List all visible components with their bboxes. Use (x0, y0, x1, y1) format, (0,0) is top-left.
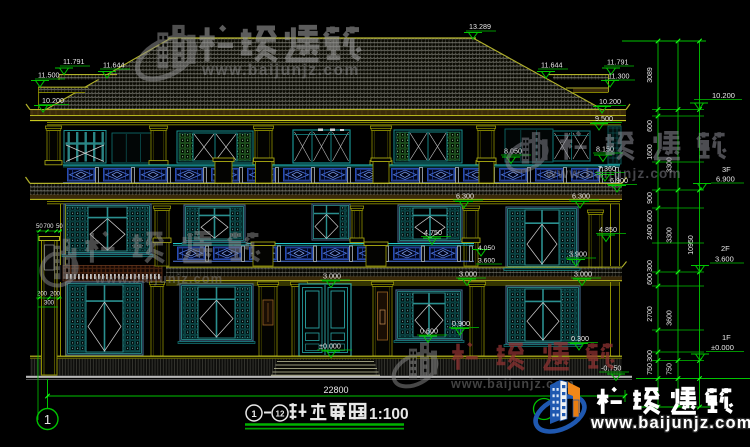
svg-text:10950: 10950 (688, 235, 695, 255)
svg-text:3.600: 3.600 (715, 255, 734, 264)
svg-text:6.300: 6.300 (572, 192, 590, 201)
svg-text:600: 600 (647, 210, 654, 222)
svg-text:700: 700 (44, 224, 55, 230)
svg-text:11.791: 11.791 (607, 58, 628, 67)
svg-text:0.600: 0.600 (420, 327, 438, 336)
svg-text:6.300: 6.300 (456, 192, 474, 201)
svg-text:www.baijunjz.com: www.baijunjz.com (590, 414, 750, 432)
svg-text:3.000: 3.000 (323, 272, 341, 281)
svg-text:600: 600 (647, 273, 654, 285)
svg-text:10.200: 10.200 (712, 91, 735, 100)
svg-text:11.791: 11.791 (63, 57, 84, 66)
svg-text:1: 1 (44, 412, 51, 427)
svg-text:1:100: 1:100 (369, 406, 409, 423)
svg-text:10.200: 10.200 (42, 96, 64, 105)
svg-text:9.500: 9.500 (595, 114, 613, 123)
svg-text:750: 750 (667, 363, 674, 375)
svg-text:50: 50 (56, 224, 63, 230)
svg-text:200: 200 (37, 292, 48, 298)
svg-text:10.200: 10.200 (599, 97, 621, 106)
svg-text:3600: 3600 (667, 310, 674, 326)
svg-text:22800: 22800 (323, 385, 348, 395)
svg-text:11.644: 11.644 (103, 61, 124, 70)
svg-text:200: 200 (50, 292, 61, 298)
svg-text:2400: 2400 (647, 224, 654, 240)
svg-text:11.500: 11.500 (38, 71, 59, 80)
svg-text:1F: 1F (722, 333, 731, 342)
svg-text:0.900: 0.900 (452, 319, 470, 328)
svg-text:3F: 3F (722, 165, 731, 174)
svg-text:600: 600 (647, 120, 654, 132)
svg-text:3.600: 3.600 (478, 258, 495, 265)
svg-text:13.289: 13.289 (469, 22, 491, 31)
svg-text:11.300: 11.300 (608, 72, 629, 81)
svg-text:±0.000: ±0.000 (319, 342, 341, 351)
svg-text:50: 50 (36, 224, 43, 230)
svg-text:1600: 1600 (647, 144, 654, 160)
svg-text:www.baijunjz.com: www.baijunjz.com (201, 62, 360, 79)
svg-text:4.050: 4.050 (478, 245, 495, 252)
svg-text:750: 750 (647, 363, 654, 375)
svg-text:3.000: 3.000 (574, 270, 592, 279)
svg-text:3089: 3089 (647, 67, 654, 83)
svg-text:www.baijunjz.com: www.baijunjz.com (545, 166, 682, 181)
svg-text:6.900: 6.900 (716, 175, 735, 184)
svg-text:300: 300 (647, 350, 654, 362)
svg-text:3.900: 3.900 (569, 250, 587, 259)
svg-text:4.850: 4.850 (599, 225, 617, 234)
svg-text:11.644: 11.644 (541, 61, 562, 70)
svg-text:300: 300 (647, 260, 654, 272)
svg-text:2F: 2F (721, 244, 730, 253)
svg-text:12: 12 (276, 410, 285, 419)
svg-text:0.300: 0.300 (571, 334, 589, 343)
svg-text:3.000: 3.000 (459, 270, 477, 279)
svg-text:300: 300 (44, 301, 55, 307)
svg-text:1: 1 (251, 409, 257, 420)
svg-text:±0.000: ±0.000 (711, 343, 734, 352)
svg-text:4.750: 4.750 (424, 228, 442, 237)
svg-text:2700: 2700 (647, 306, 654, 322)
svg-text:www.baijunjz.com: www.baijunjz.com (94, 271, 223, 286)
svg-text:3300: 3300 (667, 227, 674, 243)
svg-text:900: 900 (647, 192, 654, 204)
